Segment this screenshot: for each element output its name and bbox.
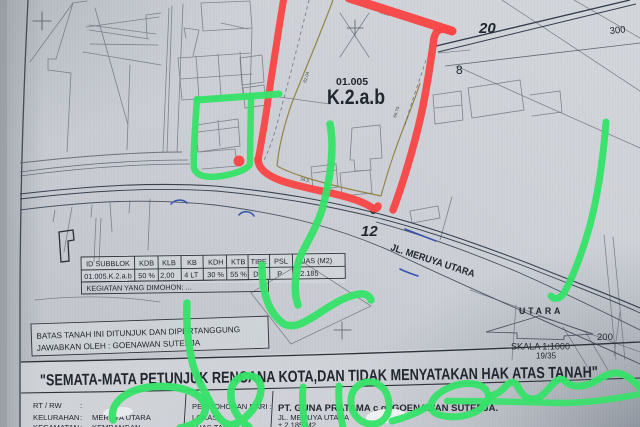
svg-text:UTARA: UTARA bbox=[519, 306, 563, 316]
svg-text:30 %: 30 % bbox=[207, 270, 224, 279]
svg-text:55 %: 55 % bbox=[230, 270, 247, 279]
svg-text:KEMBANGAN: KEMBANGAN bbox=[92, 423, 141, 427]
svg-text:P: P bbox=[277, 269, 282, 278]
svg-text:2.185: 2.185 bbox=[300, 269, 318, 278]
svg-text:19/35: 19/35 bbox=[536, 352, 557, 361]
svg-text:300: 300 bbox=[609, 24, 626, 37]
svg-text:ID SUBBLOK: ID SUBBLOK bbox=[86, 259, 130, 269]
svg-text:KECAMATAN: KECAMATAN bbox=[33, 423, 79, 427]
svg-text:200: 200 bbox=[597, 332, 613, 343]
svg-text:KLB: KLB bbox=[162, 258, 176, 267]
svg-text:RT / RW: RT / RW bbox=[33, 401, 63, 410]
svg-text:KDH: KDH bbox=[208, 258, 224, 267]
svg-text::: : bbox=[80, 401, 82, 410]
svg-text:KDB: KDB bbox=[139, 258, 154, 267]
svg-text:PSL: PSL bbox=[274, 257, 288, 266]
svg-text:8: 8 bbox=[456, 63, 463, 77]
svg-text:D: D bbox=[253, 270, 258, 279]
svg-text:01.005.K.2.a.b: 01.005.K.2.a.b bbox=[84, 271, 132, 281]
svg-text:KELURAHAN: KELURAHAN bbox=[33, 413, 79, 422]
svg-text:50 %: 50 % bbox=[138, 271, 155, 280]
svg-text:KEGIATAN YANG DIMOHON: ...: KEGIATAN YANG DIMOHON: ... bbox=[86, 282, 191, 292]
svg-text:12: 12 bbox=[361, 223, 378, 240]
svg-text:20: 20 bbox=[478, 20, 496, 37]
svg-text:KB: KB bbox=[187, 258, 197, 267]
svg-text:K.2.a.b: K.2.a.b bbox=[327, 86, 385, 109]
svg-text::: : bbox=[80, 413, 82, 422]
svg-text::: : bbox=[80, 423, 82, 427]
svg-text:KTB: KTB bbox=[231, 257, 245, 266]
svg-text:± 2.185 M2: ± 2.185 M2 bbox=[278, 421, 316, 427]
svg-text:4 LT: 4 LT bbox=[184, 270, 199, 279]
svg-text:2,00: 2,00 bbox=[160, 271, 174, 280]
